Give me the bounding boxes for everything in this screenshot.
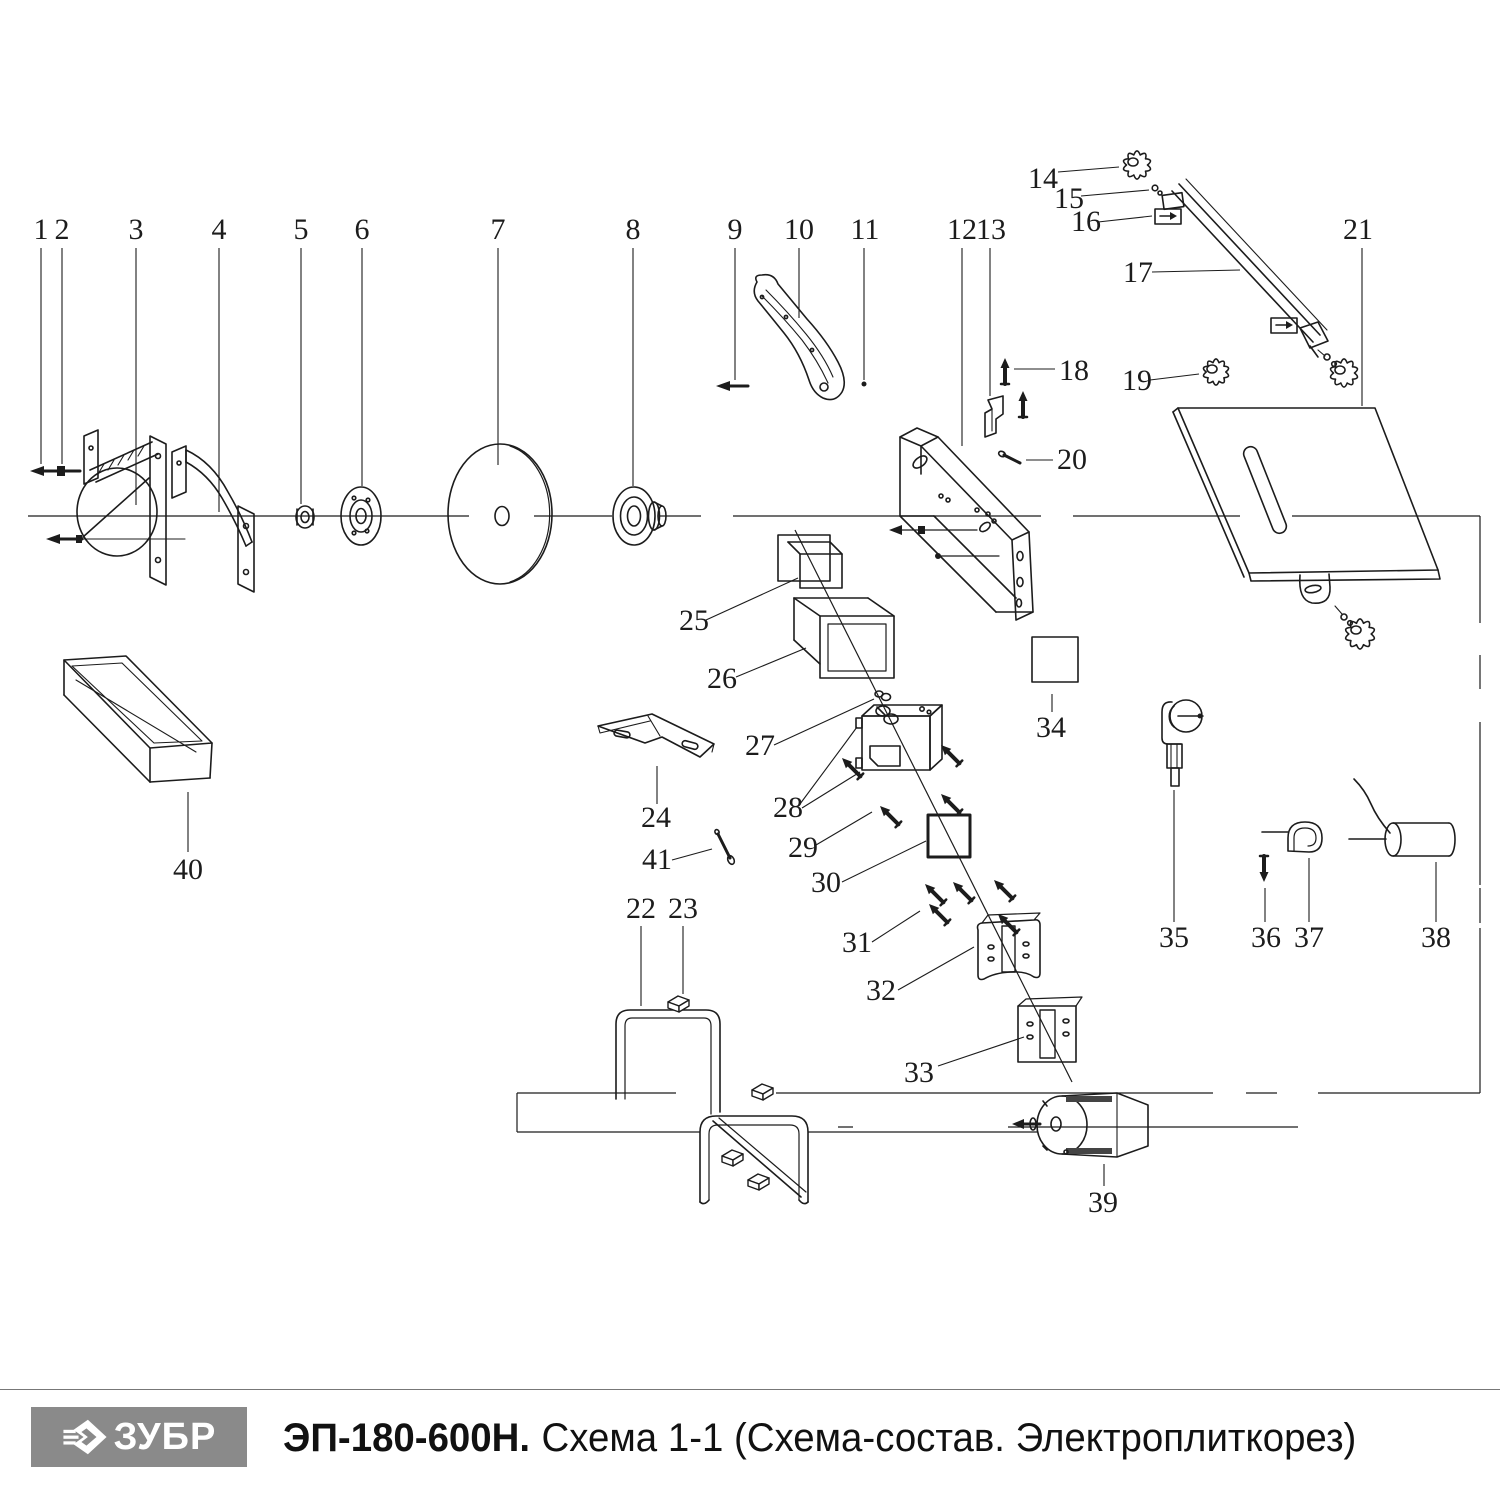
callout-28: 28 bbox=[773, 791, 803, 824]
callout-13: 13 bbox=[976, 213, 1006, 246]
callout-40: 40 bbox=[173, 853, 203, 886]
callout-4: 4 bbox=[212, 213, 227, 246]
capacitor bbox=[1349, 779, 1455, 856]
star-knob-19 bbox=[1203, 359, 1228, 385]
foot-cap bbox=[722, 1150, 743, 1166]
callout-3: 3 bbox=[129, 213, 144, 246]
callout-8: 8 bbox=[626, 213, 641, 246]
callout-11: 11 bbox=[851, 213, 880, 246]
cutting-disc bbox=[448, 444, 552, 584]
callout-16: 16 bbox=[1071, 205, 1101, 238]
callout-1: 1 bbox=[34, 213, 49, 246]
callout-7: 7 bbox=[491, 213, 506, 246]
table-slot bbox=[1242, 445, 1289, 536]
phantom-band bbox=[517, 1093, 1480, 1132]
inner-flange bbox=[613, 487, 666, 545]
callout-18: 18 bbox=[1059, 354, 1089, 387]
power-plug bbox=[1162, 700, 1203, 786]
screw-27 bbox=[875, 691, 891, 701]
bolt-and-nut bbox=[30, 466, 185, 544]
dust-housing-26 bbox=[794, 598, 894, 678]
callout-17: 17 bbox=[1123, 256, 1153, 289]
callout-36: 36 bbox=[1251, 921, 1281, 954]
motor bbox=[1012, 1093, 1148, 1157]
callout-19: 19 bbox=[1122, 364, 1152, 397]
construction-lines bbox=[28, 516, 1480, 1132]
callout-30: 30 bbox=[811, 866, 841, 899]
screw-41 bbox=[714, 829, 736, 865]
exploded-parts-diagram: 1 2 3 4 5 6 7 8 9 10 11 12 13 14 15 16 1… bbox=[0, 0, 1500, 1500]
model-number: ЭП-180-600Н. bbox=[283, 1416, 530, 1461]
clip-bracket bbox=[985, 396, 1003, 437]
callout-10: 10 bbox=[784, 213, 814, 246]
guard-bolt bbox=[716, 381, 748, 391]
callout-6: 6 bbox=[355, 213, 370, 246]
table-insert-plate bbox=[598, 714, 714, 757]
brand-name: ЗУБР bbox=[114, 1416, 217, 1459]
callout-22: 22 bbox=[626, 892, 656, 925]
arbor-nut bbox=[296, 506, 314, 528]
callout-23: 23 bbox=[668, 892, 698, 925]
callout-21: 21 bbox=[1343, 213, 1373, 246]
callout-27: 27 bbox=[745, 729, 775, 762]
footer-separator bbox=[0, 1389, 1500, 1390]
callout-numbers: 1 2 3 4 5 6 7 8 9 10 11 12 13 14 15 16 1… bbox=[34, 162, 1452, 1219]
callout-2: 2 bbox=[55, 213, 70, 246]
callout-38: 38 bbox=[1421, 921, 1451, 954]
callout-24: 24 bbox=[641, 801, 671, 834]
bracket-screws bbox=[1001, 358, 1028, 417]
table-tab bbox=[1300, 574, 1330, 603]
callout-12: 12 bbox=[947, 213, 977, 246]
screw-36 bbox=[1260, 856, 1269, 882]
callout-25: 25 bbox=[679, 604, 709, 637]
leader-lines bbox=[41, 167, 1436, 1186]
capacitor-wire bbox=[1354, 779, 1390, 833]
callout-9: 9 bbox=[728, 213, 743, 246]
rail-17 bbox=[1172, 191, 1313, 342]
diagram-subtitle: Схема 1-1 (Схема-состав. Электроплиткоре… bbox=[542, 1416, 1357, 1461]
callout-26: 26 bbox=[707, 662, 737, 695]
zubr-bison-icon bbox=[62, 1417, 108, 1457]
callout-35: 35 bbox=[1159, 921, 1189, 954]
blade-guard-half bbox=[77, 430, 166, 585]
table bbox=[1173, 408, 1440, 649]
foot-cap bbox=[748, 1174, 769, 1190]
callout-32: 32 bbox=[866, 974, 896, 1007]
water-tray bbox=[64, 656, 212, 782]
callout-29: 29 bbox=[788, 831, 818, 864]
fence-rail-assembly bbox=[1124, 151, 1358, 387]
callout-31: 31 bbox=[842, 926, 872, 959]
foot-cap bbox=[752, 1084, 773, 1100]
cable-clamp bbox=[1262, 822, 1322, 852]
knob-pin-15 bbox=[1152, 185, 1158, 191]
housing-cover-25 bbox=[778, 535, 842, 588]
brand-logo: ЗУБР bbox=[31, 1407, 247, 1467]
table-lock-knob bbox=[1346, 619, 1375, 649]
callout-39: 39 bbox=[1088, 1186, 1118, 1219]
callout-34: 34 bbox=[1036, 711, 1066, 744]
callout-33: 33 bbox=[904, 1056, 934, 1089]
small-screw bbox=[998, 450, 1020, 463]
brush-holder-33 bbox=[1018, 997, 1082, 1062]
stand-legs bbox=[616, 996, 808, 1204]
guard-bracket bbox=[172, 446, 254, 592]
callout-20: 20 bbox=[1057, 443, 1087, 476]
diagram-canvas: 1 2 3 4 5 6 7 8 9 10 11 12 13 14 15 16 1… bbox=[0, 0, 1500, 1390]
callout-5: 5 bbox=[294, 213, 309, 246]
upper-leg-outer bbox=[616, 1010, 720, 1112]
callout-41: 41 bbox=[642, 843, 672, 876]
diagram-title: ЭП-180-600Н. Схема 1-1 (Схема-состав. Эл… bbox=[283, 1413, 1356, 1463]
support-bracket bbox=[889, 428, 1033, 620]
callout-37: 37 bbox=[1294, 921, 1324, 954]
pin bbox=[862, 382, 867, 387]
plate-34 bbox=[1032, 637, 1078, 682]
